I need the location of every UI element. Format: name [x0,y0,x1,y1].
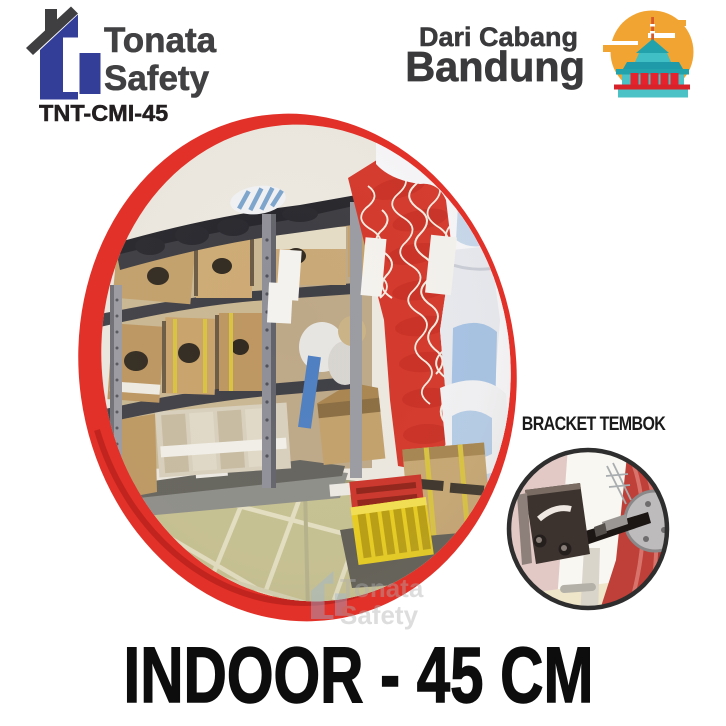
svg-text:Tonata: Tonata [340,573,424,603]
svg-text:INDOOR - 45 CM: INDOOR - 45 CM [124,631,594,719]
svg-text:Tonata: Tonata [104,21,217,60]
svg-text:Safety: Safety [340,600,419,630]
svg-text:BRACKET TEMBOK: BRACKET TEMBOK [522,413,666,435]
svg-text:Bandung: Bandung [405,43,585,90]
svg-text:Safety: Safety [104,59,210,98]
svg-text:TNT-CMI-45: TNT-CMI-45 [39,100,168,126]
